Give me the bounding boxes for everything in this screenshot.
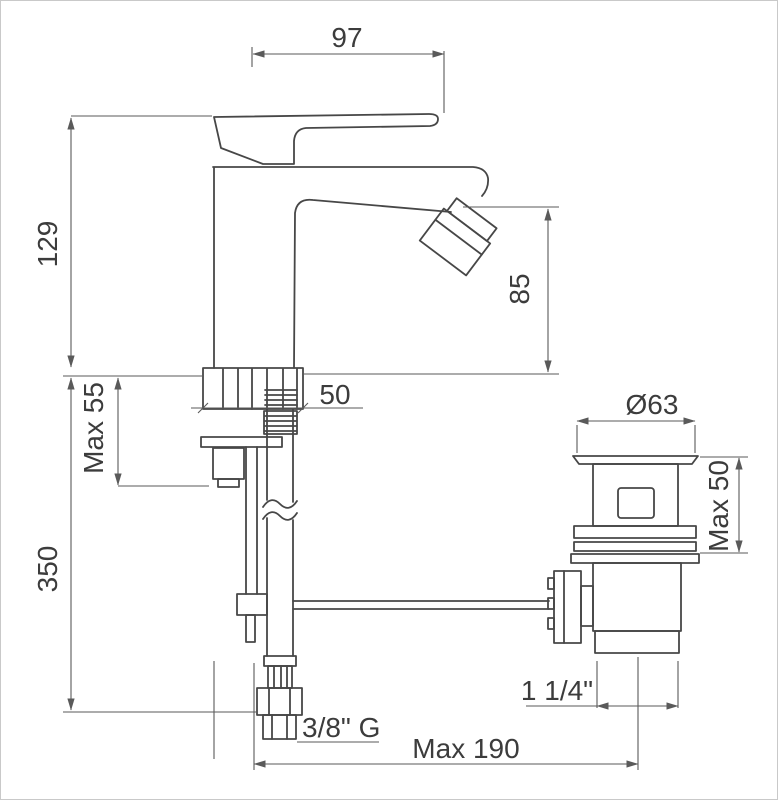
supply-nut-lower-facets <box>272 715 287 739</box>
hose-thread <box>268 666 292 688</box>
label-base-width: 50 <box>319 379 350 410</box>
faucet-body-group <box>201 114 549 739</box>
aerator <box>420 196 500 276</box>
shank-thread-hatch <box>265 390 297 405</box>
supply-hose <box>267 409 293 656</box>
label-height-above-deck: 129 <box>32 221 63 268</box>
label-supply-thread-size: 3/8" G <box>302 712 380 743</box>
pop-up-rod-connector <box>237 594 267 615</box>
label-max-distance: Max 190 <box>412 733 519 764</box>
waste-overflow-hole <box>618 488 654 518</box>
label-supply-length: 350 <box>32 546 63 593</box>
waste-flange <box>573 456 698 464</box>
mounting-stud-tip <box>218 479 239 487</box>
supply-nut <box>257 688 302 715</box>
clamp-tooth-2 <box>548 598 554 609</box>
pop-up-rod <box>246 447 257 594</box>
supply-nut-lower <box>263 715 296 739</box>
waste-seal-plate-3 <box>571 554 699 563</box>
pop-up-linkage-rod <box>293 601 549 609</box>
label-waste-max-deck-thickness: Max 50 <box>703 460 734 552</box>
mounting-washer <box>201 437 282 447</box>
waste-tailpiece <box>595 631 679 653</box>
clamp-tooth-1 <box>548 578 554 589</box>
label-waste-thread-size: 1 1/4" <box>521 675 593 706</box>
lever-handle <box>214 114 438 164</box>
clamp-link <box>581 586 593 626</box>
waste-lower-body <box>593 563 681 631</box>
clamp-tooth-3 <box>548 618 554 629</box>
hose-break-symbol <box>263 500 297 520</box>
mounting-nut <box>213 448 244 479</box>
label-waste-flange-diameter: Ø63 <box>626 389 679 420</box>
threaded-shank-hatch <box>265 416 296 431</box>
hose-collar <box>264 656 296 666</box>
base-plate-shank-lines <box>223 369 297 409</box>
pop-up-waste-group <box>548 456 699 653</box>
label-spout-reach: 97 <box>331 22 362 53</box>
pop-up-rod-lower <box>246 615 255 642</box>
bidet-mixer-technical-drawing: 97 129 350 Max 55 50 85 Ø63 Max 50 1 1/4… <box>1 1 778 800</box>
linkage-clamp <box>554 571 581 643</box>
mixer-body-outline <box>213 167 488 368</box>
base-plate <box>203 368 303 409</box>
supply-nut-facets <box>269 688 290 715</box>
hose-thread-lines <box>274 666 287 688</box>
waste-seal-plate-1 <box>574 526 696 538</box>
waste-seal-plate-2 <box>574 542 696 551</box>
label-max-deck-thickness: Max 55 <box>78 382 109 474</box>
technical-drawing-canvas: 97 129 350 Max 55 50 85 Ø63 Max 50 1 1/4… <box>0 0 778 800</box>
label-spout-height: 85 <box>504 273 535 304</box>
waste-upper-body <box>593 464 678 526</box>
